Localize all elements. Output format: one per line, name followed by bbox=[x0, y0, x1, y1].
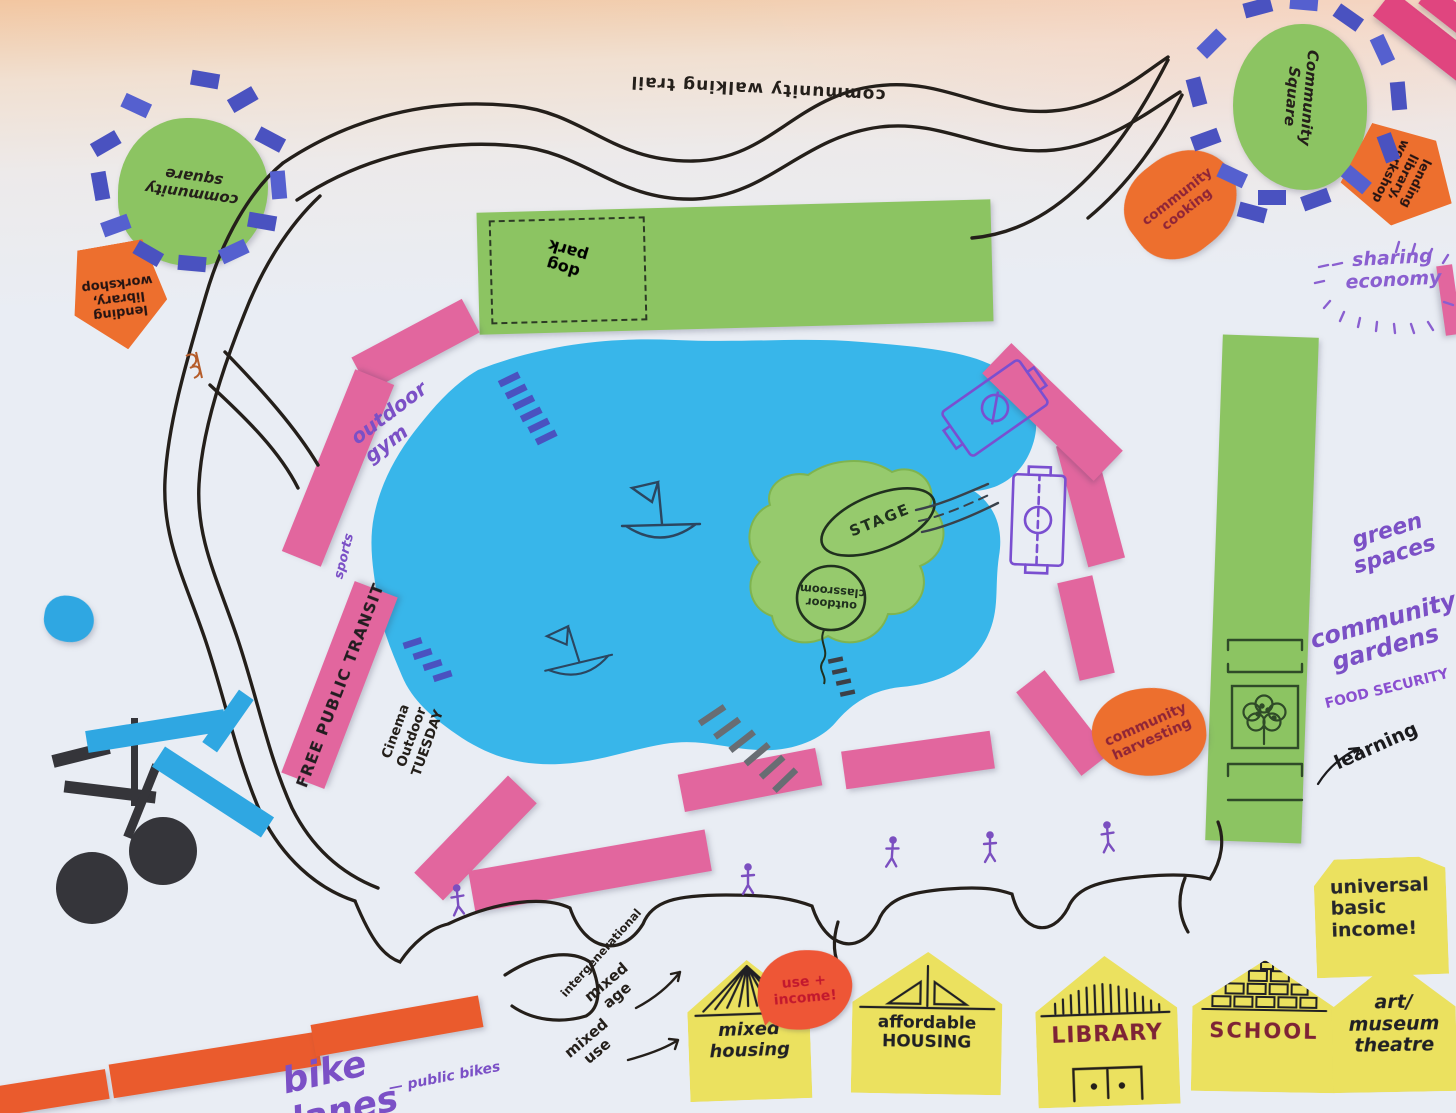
use-income-bubble: use + income! bbox=[756, 948, 854, 1033]
library-house: LIBRARY bbox=[1033, 954, 1180, 1109]
school-label: SCHOOL bbox=[1192, 1019, 1336, 1045]
sharing-economy-label: sharing economy bbox=[1337, 245, 1449, 294]
community-harvesting-note: community harvesting bbox=[1088, 682, 1211, 781]
roof-bricks-icon bbox=[1192, 959, 1337, 1018]
community-gardens-strip bbox=[1205, 334, 1319, 843]
mixed-use-label: mixed use bbox=[558, 1013, 626, 1078]
lending-library-right-label: lending library, workshop bbox=[1370, 138, 1437, 218]
outdoor-cinema-label: Cinema Outdoor TUESDAY bbox=[372, 685, 451, 789]
walking-trail-label: community walking trail bbox=[628, 71, 889, 104]
stage-outline bbox=[797, 474, 944, 684]
sports-label: sports bbox=[332, 532, 358, 581]
bridge-icon bbox=[916, 484, 998, 532]
bike-lane-strip bbox=[0, 1069, 110, 1113]
transit-strip bbox=[982, 343, 1123, 481]
lending-library-left-label: lending library, workshop bbox=[81, 271, 157, 322]
universal-basic-income-note: universal basic income! bbox=[1313, 856, 1449, 979]
lake bbox=[371, 339, 1036, 764]
community-gardens-label: community gardens bbox=[1307, 590, 1456, 681]
community-cooking-note: community cooking bbox=[1106, 129, 1258, 278]
roof-lines-icon bbox=[1033, 954, 1177, 1021]
sailboat-icons bbox=[537, 482, 700, 681]
island bbox=[749, 461, 943, 642]
community-harvesting-label: community harvesting bbox=[1102, 700, 1195, 765]
learning-label: learning bbox=[1331, 719, 1421, 775]
blue-paper-blob bbox=[41, 593, 97, 646]
art-museum-label: art/ museum theatre bbox=[1331, 991, 1456, 1058]
green-spaces-label: green spaces bbox=[1331, 503, 1451, 583]
use-income-label: use + income! bbox=[772, 971, 838, 1008]
art-museum-house: art/ museum theatre bbox=[1331, 959, 1456, 1093]
transit-strip bbox=[678, 748, 823, 812]
transit-strip bbox=[468, 829, 712, 912]
transit-strip bbox=[841, 731, 995, 790]
outdoor-classroom-label: outdoor classroom bbox=[796, 581, 868, 613]
universal-basic-income-label: universal basic income! bbox=[1313, 856, 1448, 942]
community-map-photo: dog park FREE PUBLIC TRANSIT lending lib… bbox=[0, 0, 1456, 1113]
roof-triangles-icon bbox=[852, 951, 1003, 1014]
free-public-transit-label: FREE PUBLIC TRANSIT bbox=[292, 580, 388, 790]
transit-strip bbox=[1057, 575, 1115, 681]
scribble-mark bbox=[186, 352, 202, 378]
affordable-housing-house: affordable HOUSING bbox=[851, 951, 1003, 1096]
library-label: LIBRARY bbox=[1036, 1020, 1179, 1050]
transit-strip bbox=[282, 369, 394, 566]
dog-park-strip: dog park bbox=[476, 199, 993, 334]
affordable-housing-label: affordable HOUSING bbox=[851, 1013, 1002, 1054]
school-house: SCHOOL bbox=[1191, 959, 1337, 1093]
island-ladder-icon bbox=[828, 656, 856, 697]
stage-label: STAGE bbox=[844, 500, 915, 542]
bicycle-icon bbox=[51, 690, 274, 924]
community-cooking-label: community cooking bbox=[1139, 164, 1225, 241]
door-icon bbox=[1037, 1054, 1181, 1107]
